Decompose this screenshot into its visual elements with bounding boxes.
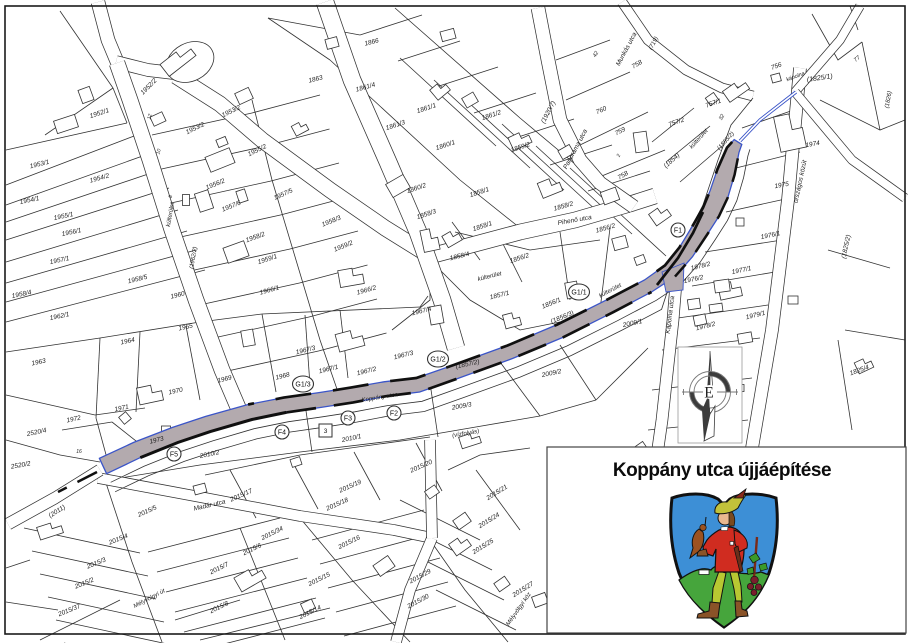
svg-text:F4: F4: [278, 429, 286, 436]
svg-text:G1/3: G1/3: [295, 381, 310, 388]
svg-text:G1/2: G1/2: [430, 356, 445, 363]
svg-text:F2: F2: [390, 410, 398, 417]
svg-text:G1/1: G1/1: [571, 289, 586, 296]
svg-text:3: 3: [324, 428, 328, 435]
svg-text:Koppány utca újjáépítése: Koppány utca újjáépítése: [613, 460, 831, 481]
svg-text:F1: F1: [674, 227, 682, 234]
svg-text:16: 16: [76, 449, 82, 455]
svg-text:F5: F5: [170, 451, 178, 458]
svg-text:F3: F3: [344, 415, 352, 422]
svg-text:E: E: [704, 385, 713, 402]
